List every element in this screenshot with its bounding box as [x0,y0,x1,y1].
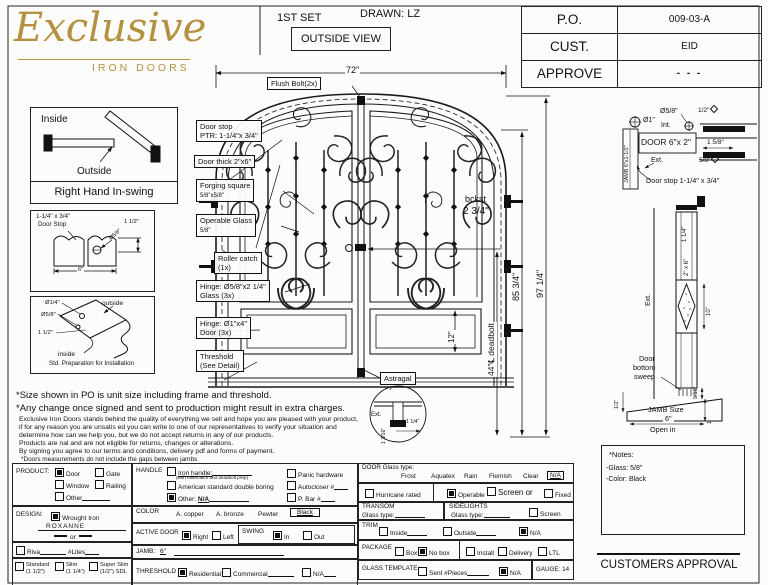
dim-97: 97 1/4" [535,269,545,299]
prep-caption: Std. Preparation for Installation [31,361,152,368]
swing-outside-label: Outside [77,166,111,177]
side-section-top [623,114,757,189]
doorstop-panel: 1-1/4" x 3/4" Door Stop 1 1/2" Ø5/8" 6" [30,210,155,292]
side-jamb-val: 6" [663,415,674,423]
dim-85: 85 3/4" [511,272,521,302]
callout-astragal: Astragal [380,372,416,385]
doorstop-line1: 1-1/4" x 3/4" [36,214,70,221]
callout-threshold: Threshold(See Detail) [196,350,244,372]
prep-dim2: Ø5/8" [41,312,56,318]
doorstop-dim-w: 6" [77,267,84,273]
dim-width: 72" [345,65,360,75]
callout-hinge-door: Hinge: Ø1"x4"Door (3x) [196,317,251,339]
astragal-detail [370,386,426,442]
side-d114: 1 1/4" [682,227,689,242]
callout-door-thick: Door thick 2"x6" [194,155,255,168]
swing-panel: Inside Outside Right Hand In-swing [30,107,178,204]
technical-drawing [0,0,768,585]
prep-dim3: 1 1/2" [38,330,53,336]
callout-roller-catch: Roller catch(1x) [214,252,262,274]
prep-inside-label: inside [58,351,75,358]
drill-point-small-icon [684,121,694,131]
prep-dim1: Ø1/4" [45,300,60,306]
swing-caption: Right Hand In-swing [54,186,153,198]
prep-panel: Ø1/4" Ø5/8" 1 1/2" outside inside Std. P… [30,296,155,374]
doorstop-dim-hole: Ø5/8" [108,228,123,242]
prep-outside-label: outside [102,300,123,307]
dim-12: 12" [447,330,456,344]
swing-inside-label: Inside [41,114,68,125]
order-sheet: Exclusive IRON DOORS 1ST SET DRAWN: LZ O… [0,0,768,585]
callout-flush-bolt: Flush Bolt(2x) [267,77,321,90]
swing-caption-strip: Right Hand In-swing [31,181,177,203]
dim-bckst-label: bckst [464,194,487,204]
drill-point-icon [629,116,641,128]
side-door-size: DOOR 6"x 2" [641,138,691,147]
callout-hinge-glass: Hinge: Ø5/8"x2 1/4"Glass (3x) [196,280,270,302]
side-section-vertical [623,196,722,424]
callout-door-stop: Door stopPTR: 1-1/4"x 3/4" [196,120,262,142]
dim-bckst-value: 2 3/4" [462,206,490,217]
side-jamb-size: JAMB Size [648,406,684,414]
doorstop-line2: Door Stop [38,222,66,229]
dim-deadbolt: 44"℄ deadbolt [486,322,497,377]
callout-operable-glass: Operable Glass5/8" [196,214,256,237]
callout-forging: Forging square5/8"x5/8" [196,179,254,202]
page-border [8,6,759,583]
doorstop-dim-h: 1 1/2" [124,219,139,225]
side-s26: 2" x 6" [684,259,691,276]
